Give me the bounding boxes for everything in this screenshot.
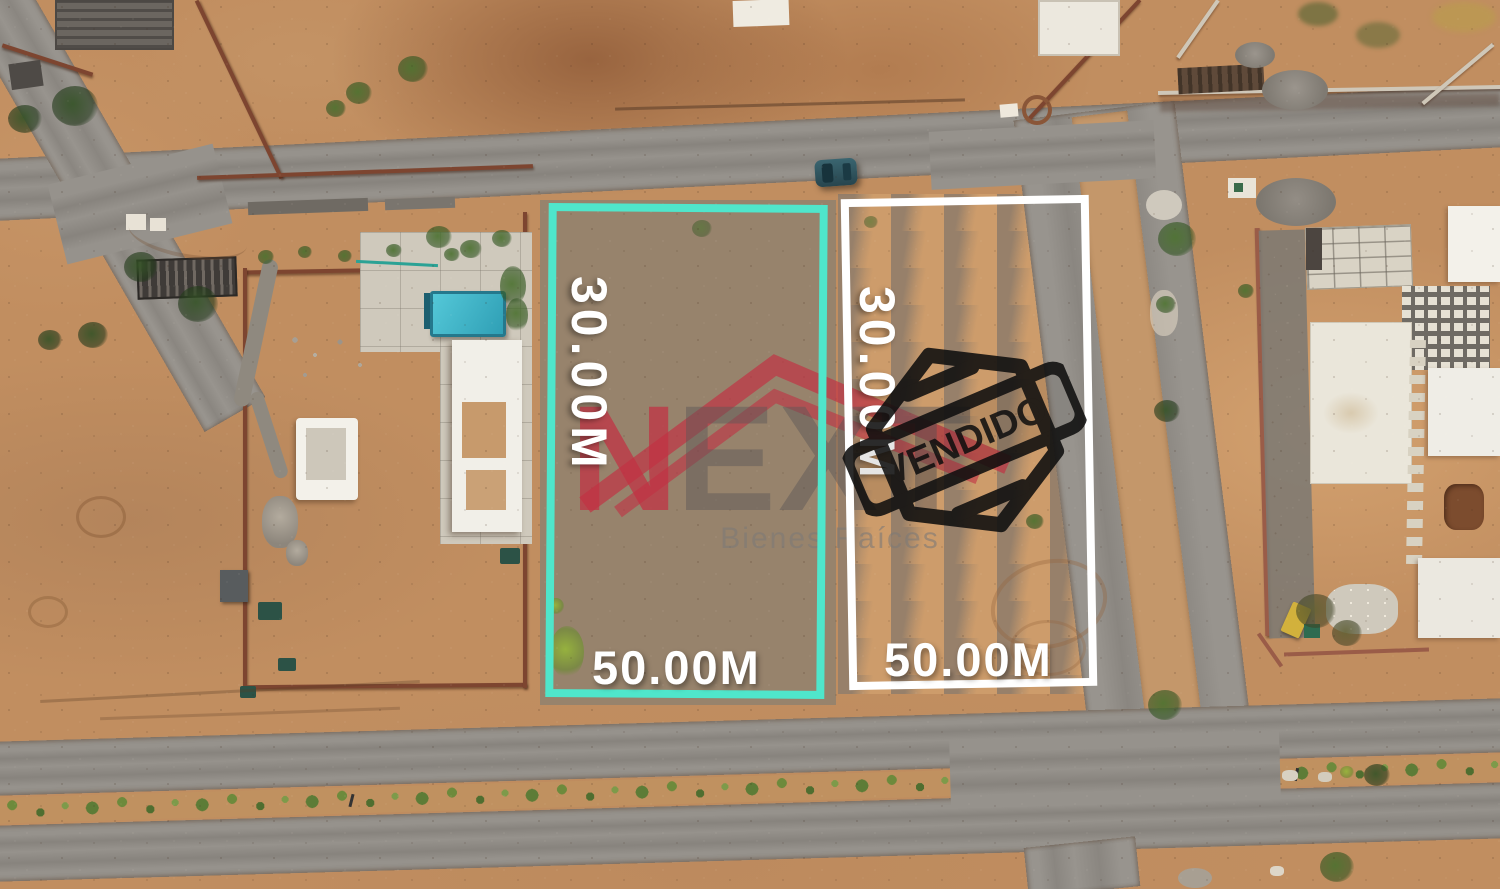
aerial-photo: N EXT Bienes Raíces 30.00M 30.00M 50.00M… bbox=[0, 0, 1500, 889]
lot-left-front-label: 50.00M bbox=[592, 640, 761, 695]
lot-right-front-label: 50.00M bbox=[884, 632, 1053, 687]
lot-left-depth-label: 30.00M bbox=[560, 276, 618, 473]
